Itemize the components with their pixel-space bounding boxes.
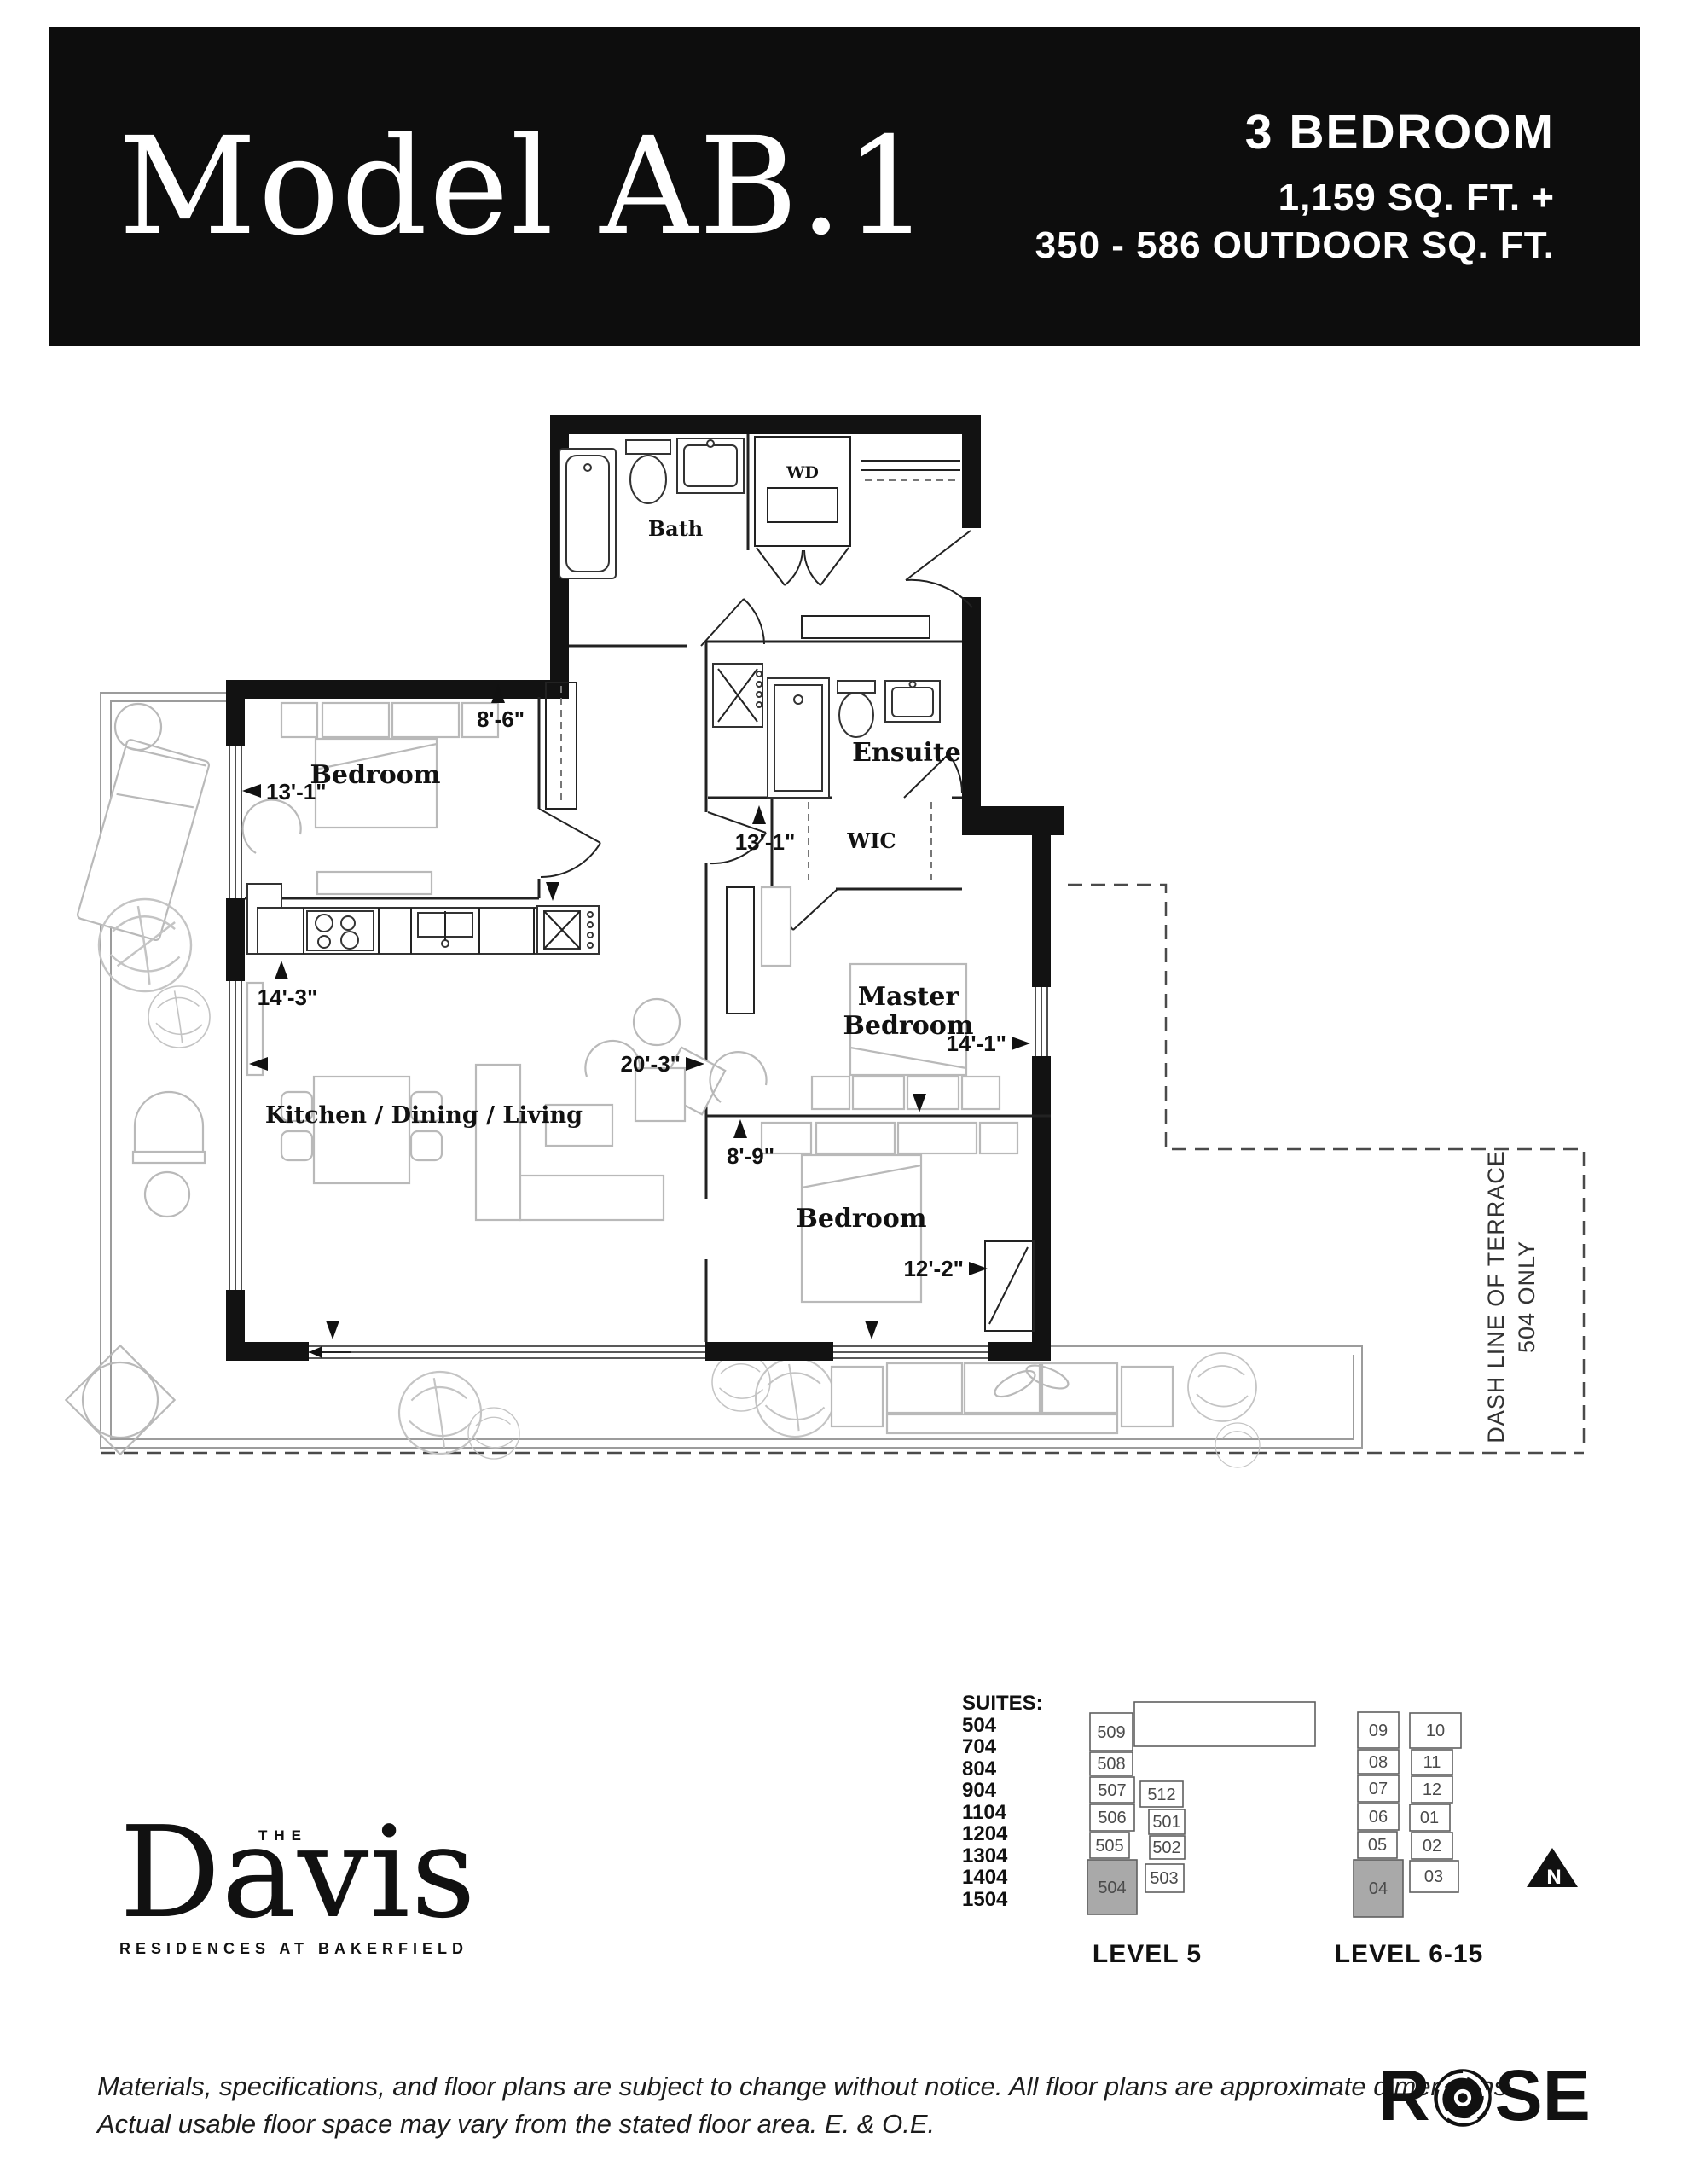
- kp5-505: 505: [1095, 1837, 1123, 1856]
- kp6-10: 10: [1426, 1722, 1445, 1740]
- label-bedroom1: Bedroom: [310, 760, 441, 790]
- keyplan-level5: 509 508 507 506 505 512 501 502 503 504 …: [1087, 1702, 1315, 1968]
- dim-8-6: 8'-6": [477, 706, 525, 732]
- label-bedroom2: Bedroom: [797, 1204, 927, 1234]
- north-label: N: [1546, 1866, 1561, 1889]
- header-specs: 3 BEDROOM 1,159 SQ. FT. + 350 - 586 OUTD…: [1035, 104, 1555, 270]
- north-arrow-icon: N: [1527, 1848, 1578, 1889]
- kp6-04-highlight: 04: [1369, 1879, 1388, 1898]
- label-master-1: Master: [858, 982, 959, 1012]
- rose-logo-se: SE: [1495, 2059, 1591, 2131]
- kp6-01: 01: [1420, 1809, 1439, 1827]
- dim-14-3: 14'-3": [258, 985, 318, 1010]
- suite-item: 1304: [962, 1845, 1043, 1867]
- kp6-06: 06: [1369, 1808, 1388, 1827]
- terrace-note-line1: DASH LINE OF TERRACE: [1483, 1150, 1509, 1443]
- kp6-11: 11: [1423, 1753, 1441, 1772]
- suite-item: 1404: [962, 1867, 1043, 1889]
- label-kitchen: Kitchen / Dining / Living: [265, 1102, 583, 1129]
- unit-area-line2: 350 - 586 OUTDOOR SQ. FT.: [1035, 222, 1555, 270]
- suite-item: 1104: [962, 1802, 1043, 1824]
- kp5-502: 502: [1152, 1838, 1180, 1857]
- suite-item: 1204: [962, 1823, 1043, 1845]
- label-bath: Bath: [648, 516, 703, 541]
- kp5-504-highlight: 504: [1098, 1879, 1126, 1897]
- dim-13-1-a: 13'-1": [266, 779, 327, 804]
- davis-logo-the: THE: [258, 1827, 308, 1844]
- label-wd: WD: [786, 463, 819, 482]
- kp6-08: 08: [1369, 1753, 1388, 1772]
- kp6-12: 12: [1423, 1780, 1441, 1799]
- kp5-512: 512: [1147, 1786, 1175, 1804]
- kp6-07: 07: [1369, 1780, 1388, 1798]
- keyplan5-label: LEVEL 5: [1093, 1940, 1202, 1968]
- kp5-506: 506: [1098, 1809, 1126, 1827]
- keyplan615-label: LEVEL 6-15: [1335, 1940, 1484, 1968]
- rose-logo: R SE: [1378, 2059, 1591, 2131]
- legal-line2: Actual usable floor space may vary from …: [97, 2106, 1515, 2143]
- kp6-05: 05: [1368, 1836, 1387, 1855]
- davis-logo-tagline: RESIDENCES AT BAKERFIELD: [119, 1940, 478, 1958]
- rose-icon: [1432, 2067, 1493, 2129]
- kp6-02: 02: [1423, 1837, 1441, 1856]
- suite-item: 1504: [962, 1889, 1043, 1911]
- suites-title: SUITES:: [962, 1693, 1043, 1715]
- kp5-501: 501: [1152, 1813, 1180, 1832]
- kp6-03: 03: [1424, 1867, 1443, 1886]
- keyplan-level6-15: 09 08 07 06 05 10 11 12 01 02 03 04 LEVE…: [1335, 1712, 1484, 1968]
- kp5-509: 509: [1097, 1723, 1125, 1742]
- suite-item: 804: [962, 1758, 1043, 1780]
- dim-8-9: 8'-9": [727, 1143, 774, 1169]
- header-banner: Model AB.1 3 BEDROOM 1,159 SQ. FT. + 350…: [49, 27, 1640, 346]
- floorplan-sheet: DASH LINE OF TERRACE 504 ONLY: [0, 0, 1687, 2184]
- unit-area-line1: 1,159 SQ. FT. +: [1035, 174, 1555, 222]
- label-ensuite: Ensuite: [852, 738, 961, 768]
- dim-20-3: 20'-3": [620, 1051, 681, 1077]
- rose-logo-r: R: [1378, 2059, 1430, 2131]
- dim-14-1: 14'-1": [946, 1031, 1006, 1056]
- terrace-note: DASH LINE OF TERRACE 504 ONLY: [1483, 1150, 1539, 1443]
- suite-item: 704: [962, 1736, 1043, 1758]
- footer-divider: [49, 2001, 1640, 2001]
- kp6-09: 09: [1369, 1722, 1388, 1740]
- kp5-508: 508: [1097, 1755, 1125, 1774]
- dim-13-1-b: 13'-1": [735, 829, 796, 855]
- unit-type: 3 BEDROOM: [1035, 104, 1555, 160]
- suites-list: SUITES: 504 704 804 904 1104 1204 1304 1…: [962, 1693, 1043, 1910]
- model-title: Model AB.1: [119, 108, 931, 265]
- kp5-503: 503: [1150, 1869, 1178, 1888]
- suite-item: 904: [962, 1780, 1043, 1802]
- legal-line1: Materials, specifications, and floor pla…: [97, 2068, 1515, 2106]
- label-wic: WIC: [846, 828, 896, 853]
- terrace-note-line2: 504 ONLY: [1514, 1240, 1539, 1353]
- davis-logo: THE Davis RESIDENCES AT BAKERFIELD: [119, 1809, 478, 1958]
- dim-12-2: 12'-2": [903, 1256, 964, 1281]
- outdoor-sofa: [832, 1361, 1173, 1433]
- legal-disclaimer: Materials, specifications, and floor pla…: [97, 2068, 1515, 2143]
- suite-item: 504: [962, 1715, 1043, 1737]
- kp5-507: 507: [1098, 1781, 1126, 1800]
